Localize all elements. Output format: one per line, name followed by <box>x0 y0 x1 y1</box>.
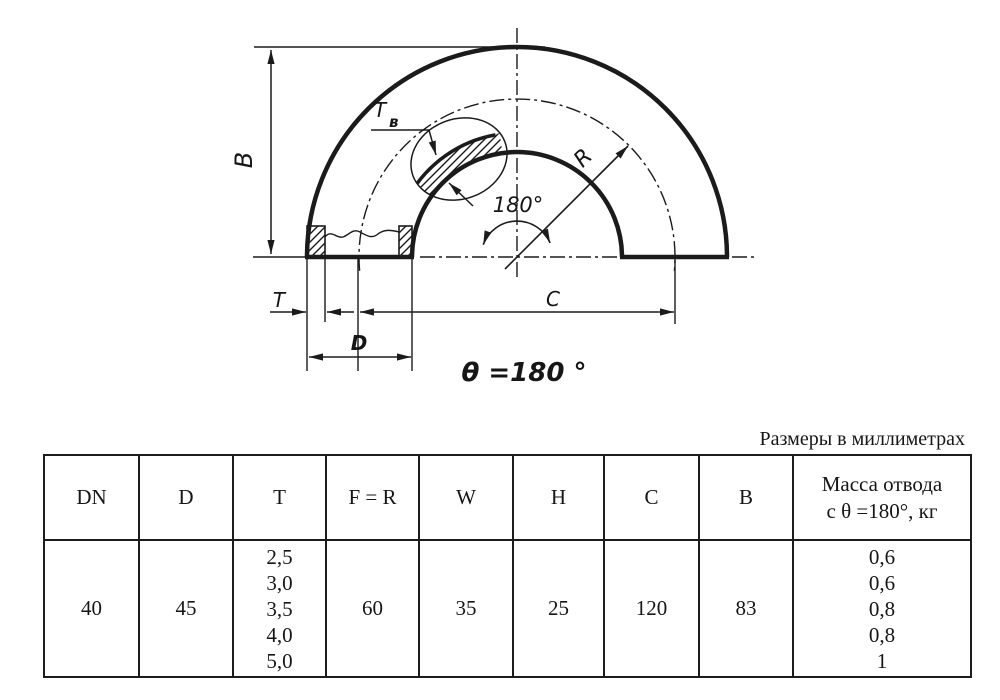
col-header-fr: F = R <box>326 455 419 540</box>
mass-header-line2: с θ =180°, кг <box>796 498 968 525</box>
col-header-t: T <box>233 455 326 540</box>
dim-label-t: T <box>273 288 287 312</box>
cell-h: 25 <box>513 540 604 677</box>
col-header-w: W <box>419 455 513 540</box>
technical-drawing-180deg-elbow: T в B T C D R <box>0 0 1000 430</box>
d-dimension: D <box>309 331 411 357</box>
dim-label-tv-sub: в <box>389 113 399 131</box>
dim-label-tv: T <box>374 98 388 122</box>
theta-label: θ =180 ° <box>461 358 586 388</box>
t-dimension: T <box>270 288 354 312</box>
angle-label: 180° <box>493 193 544 217</box>
col-header-mass: Масса отвода с θ =180°, кг <box>793 455 971 540</box>
centerlines <box>359 28 756 278</box>
cell-dn: 40 <box>44 540 139 677</box>
mass-header-line1: Масса отвода <box>796 471 968 498</box>
units-note: Размеры в миллиметрах <box>43 428 965 451</box>
b-dimension: B <box>230 50 271 254</box>
col-header-b: B <box>699 455 793 540</box>
inner-wall-hatched <box>399 226 412 257</box>
col-header-c: C <box>604 455 699 540</box>
elbow-outline <box>305 47 729 257</box>
col-header-dn: DN <box>44 455 139 540</box>
cell-c: 120 <box>604 540 699 677</box>
cell-w: 35 <box>419 540 513 677</box>
tv-inner-arrow <box>449 183 473 206</box>
dim-label-b: B <box>230 152 258 168</box>
col-header-d: D <box>139 455 233 540</box>
cell-b: 83 <box>699 540 793 677</box>
cell-d: 45 <box>139 540 233 677</box>
outer-wall-hatched <box>307 226 325 257</box>
break-wavy-line <box>325 230 399 237</box>
page: T в B T C D R <box>0 0 1000 700</box>
c-dimension: C <box>360 287 674 312</box>
dim-label-d: D <box>351 331 368 355</box>
cell-t: 2,5 3,0 3,5 4,0 5,0 <box>233 540 326 677</box>
col-header-h: H <box>513 455 604 540</box>
cell-fr: 60 <box>326 540 419 677</box>
cell-mass: 0,6 0,6 0,8 0,8 1 <box>793 540 971 677</box>
dim-label-c: C <box>546 287 560 311</box>
tv-leader-line <box>371 130 436 155</box>
dimensions-table: DN D T F = R W H C B Масса отвода с θ =1… <box>43 454 972 678</box>
